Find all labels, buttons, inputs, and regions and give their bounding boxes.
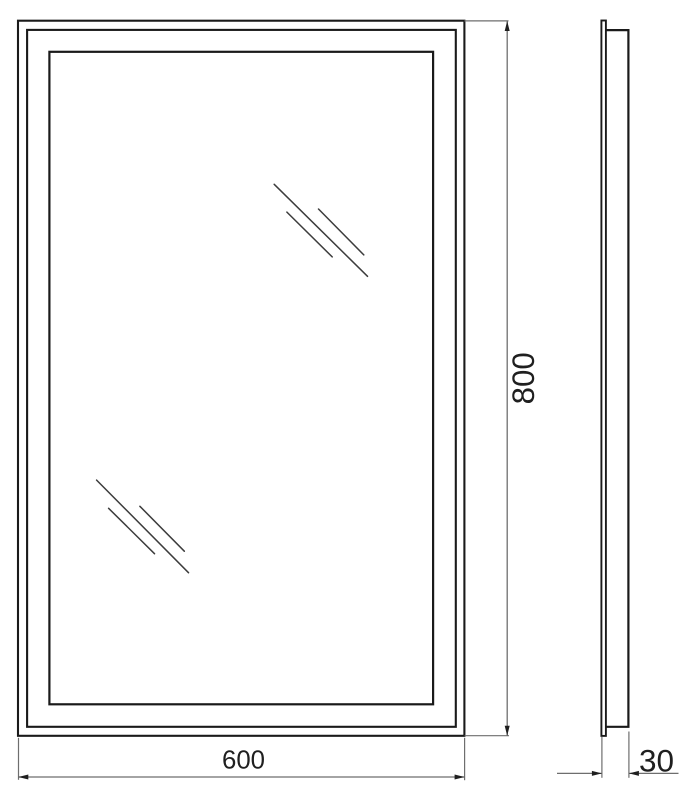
- svg-text:800: 800: [506, 352, 541, 404]
- svg-text:30: 30: [639, 742, 674, 778]
- svg-text:600: 600: [222, 747, 265, 775]
